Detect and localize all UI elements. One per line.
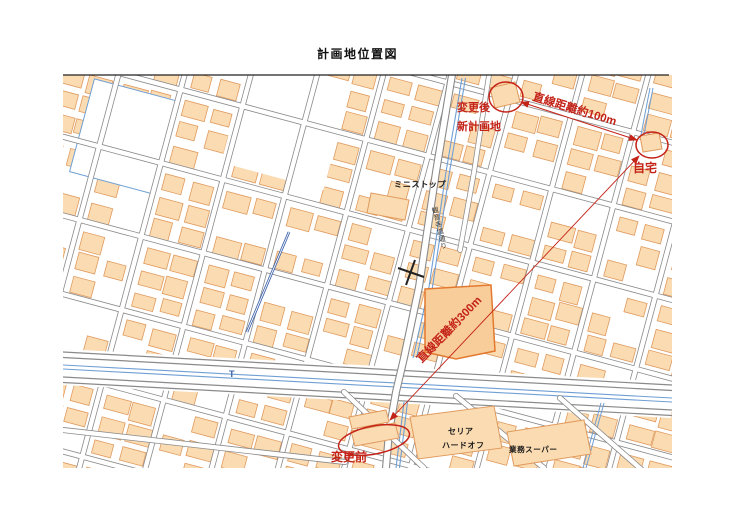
- after-change-label: 変更後: [457, 100, 491, 114]
- new-plan-site-label: 新計画地: [457, 119, 501, 133]
- map-canvas: T ミニストップ 観音寺城通り セリア ハードオフ 業務スーパー 変更後 新計画…: [0, 0, 736, 520]
- ministop-label: ミニストップ: [394, 179, 446, 189]
- before-change-label: 変更前: [331, 449, 367, 464]
- hardoff-label: ハードオフ: [442, 441, 485, 450]
- home-label: 自宅: [633, 160, 657, 175]
- traffic-signal-marker: T: [229, 369, 235, 379]
- gyomu-super-label: 業務スーパー: [508, 444, 558, 454]
- home-building: [640, 133, 662, 152]
- seria-label: セリア: [448, 427, 474, 436]
- location-map-page: 計画地位置図: [0, 0, 736, 520]
